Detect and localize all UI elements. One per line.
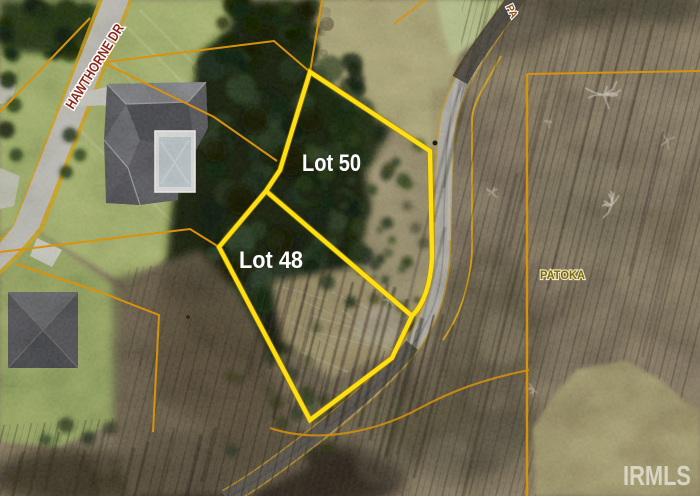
svg-text:IRMLS: IRMLS (623, 460, 691, 491)
svg-text:Lot 48: Lot 48 (239, 247, 303, 274)
svg-text:Lot 50: Lot 50 (302, 150, 361, 177)
svg-text:PATOKA: PATOKA (540, 270, 585, 282)
